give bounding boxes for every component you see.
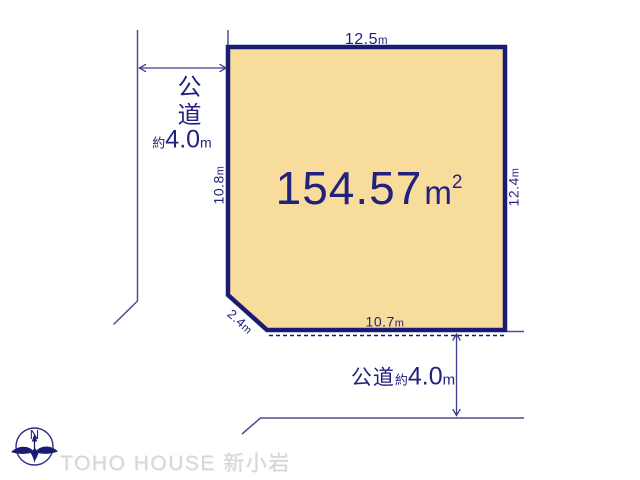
dimension-left: 10.8m bbox=[212, 166, 227, 205]
dimension-right-value: 12.4 bbox=[505, 177, 521, 206]
brand-watermark: TOHO HOUSE 新小岩 bbox=[60, 447, 291, 477]
dimension-bottom: 10.7m bbox=[366, 315, 405, 330]
dimension-top: 12.5m bbox=[345, 32, 388, 48]
dimension-right-unit: m bbox=[509, 168, 521, 178]
diagram-canvas: N bbox=[0, 0, 640, 480]
left-road-name-label: 公道 bbox=[174, 74, 198, 130]
bottom-road-width-value: 4.0 bbox=[408, 363, 443, 391]
left-road-width-unit: m bbox=[200, 134, 212, 150]
plot-area-unit-base: m bbox=[424, 174, 452, 211]
bottom-road-width-unit: m bbox=[443, 372, 456, 389]
left-road-width-value: 4.0 bbox=[165, 125, 200, 153]
left-road-width-label: 約4.0m bbox=[152, 127, 211, 152]
dimension-top-unit: m bbox=[378, 35, 388, 47]
bottom-road-name: 公道 bbox=[351, 367, 395, 390]
plot-area-unit: m2 bbox=[424, 174, 462, 211]
plot-area-label: 154.57m2 bbox=[276, 165, 463, 211]
dimension-right: 12.4m bbox=[506, 168, 521, 207]
bottom-road-boundary-line bbox=[242, 418, 524, 434]
dimension-bottom-unit: m bbox=[395, 318, 405, 330]
left-road-boundary-diagonal bbox=[114, 301, 138, 325]
plot-area-unit-exponent: 2 bbox=[452, 172, 463, 193]
dimension-bottom-value: 10.7 bbox=[366, 314, 395, 330]
dimension-top-value: 12.5 bbox=[345, 31, 378, 48]
dimension-left-value: 10.8 bbox=[211, 175, 227, 204]
compass-icon: N bbox=[11, 427, 58, 465]
left-road-approx: 約 bbox=[152, 135, 165, 150]
plot-area-value: 154.57 bbox=[276, 162, 423, 214]
land-plot-diagram: N 12.5m 10.8m 12.4m 10.7m 2.4m 154.57m2 … bbox=[0, 0, 640, 480]
bottom-road-label: 公道約4.0m bbox=[351, 365, 455, 390]
dimension-left-unit: m bbox=[215, 166, 227, 176]
bottom-road-approx: 約 bbox=[395, 373, 408, 388]
left-road-width-arrow bbox=[140, 64, 227, 72]
